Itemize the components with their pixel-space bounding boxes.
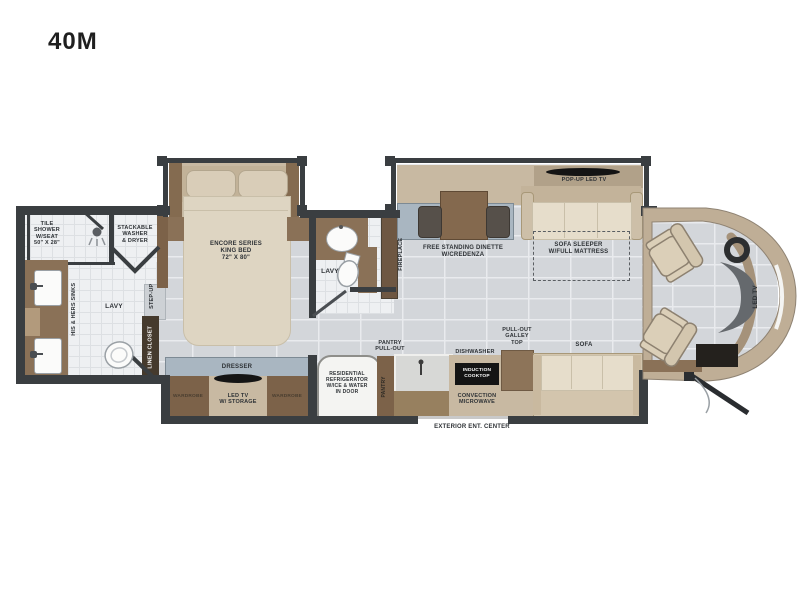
- floorplan-canvas: 40M INDUCT: [0, 0, 800, 600]
- dresser-label: DRESSER: [212, 364, 262, 371]
- washer-bay-walls: [111, 247, 159, 271]
- step-up-label: STEP-UP: [149, 276, 155, 316]
- microwave-label: CONVECTION MICROWAVE: [450, 393, 504, 406]
- sofa-sleeper-label: SOFA SLEEPER W/FULL MATTRESS: [536, 242, 621, 256]
- refrigerator-label: RESIDENTIAL REFRIGERATOR W/ICE & WATER I…: [320, 372, 374, 396]
- front-tv-label: LED TV: [752, 285, 759, 309]
- entry-door: [692, 376, 748, 413]
- shower-label: TILE SHOWER W/SEAT 50" X 28": [26, 221, 68, 247]
- rear-lavy-label: LAVY: [96, 303, 132, 311]
- dishwasher-label: DISHWASHER: [448, 349, 502, 355]
- wardrobe-right-label: WARDROBE: [266, 394, 308, 400]
- fireplace-label: FIREPLACE: [398, 224, 404, 284]
- galley-top-label: PULL-OUT GALLEY TOP: [498, 327, 536, 346]
- faucet-icons-rear: [30, 283, 43, 358]
- shower-door-line: [84, 212, 103, 229]
- pantry-label: PANTRY: [382, 367, 388, 407]
- his-hers-sinks-label: HIS & HERS SINKS: [71, 279, 77, 339]
- tv-storage-label: LED TV W/ STORAGE: [212, 393, 264, 406]
- wardrobe-left-label: WARDROBE: [167, 394, 209, 400]
- popup-tv-label: POP-UP LED TV: [544, 177, 624, 183]
- dinette-label: FREE STANDING DINETTE W/CREDENZA: [420, 245, 506, 259]
- lav-door-line: [313, 291, 346, 316]
- exterior-ent-label: EXTERIOR ENT. CENTER: [427, 424, 517, 431]
- sofa-label: SOFA: [560, 342, 608, 349]
- shower-head-icon: [89, 228, 105, 247]
- step-well: [696, 344, 738, 367]
- toilet-rear: [101, 338, 136, 372]
- washer-label: STACKABLE WASHER & DRYER: [112, 225, 158, 244]
- king-bed-label: ENCORE SERIES KING BED 72" X 80": [196, 241, 276, 262]
- mid-lavy-label: LAVY: [316, 268, 344, 276]
- galley-faucet-icon: [419, 360, 424, 376]
- lav-faucet-icon: [339, 225, 343, 229]
- linen-closet-label: LINEN CLOSET: [147, 315, 153, 380]
- overlay-graphics: LED TV: [0, 0, 800, 600]
- pantry-pullout-label: PANTRY PULL-OUT: [366, 340, 414, 353]
